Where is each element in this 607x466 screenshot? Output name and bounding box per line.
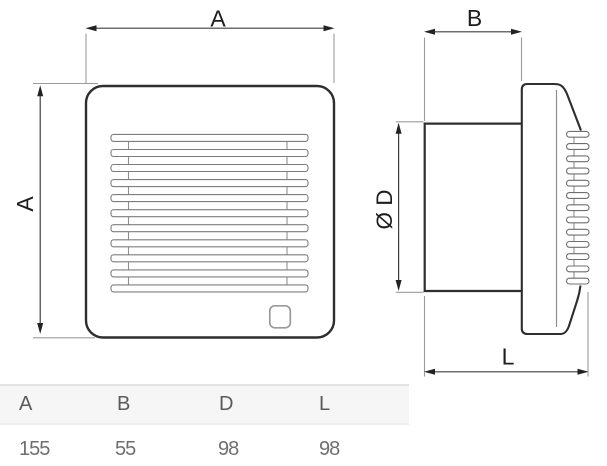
svg-text:A: A [12,196,38,212]
svg-text:L: L [502,344,515,370]
svg-text:Ø D: Ø D [372,189,397,229]
svg-text:A: A [210,6,226,32]
svg-text:B: B [467,5,482,31]
